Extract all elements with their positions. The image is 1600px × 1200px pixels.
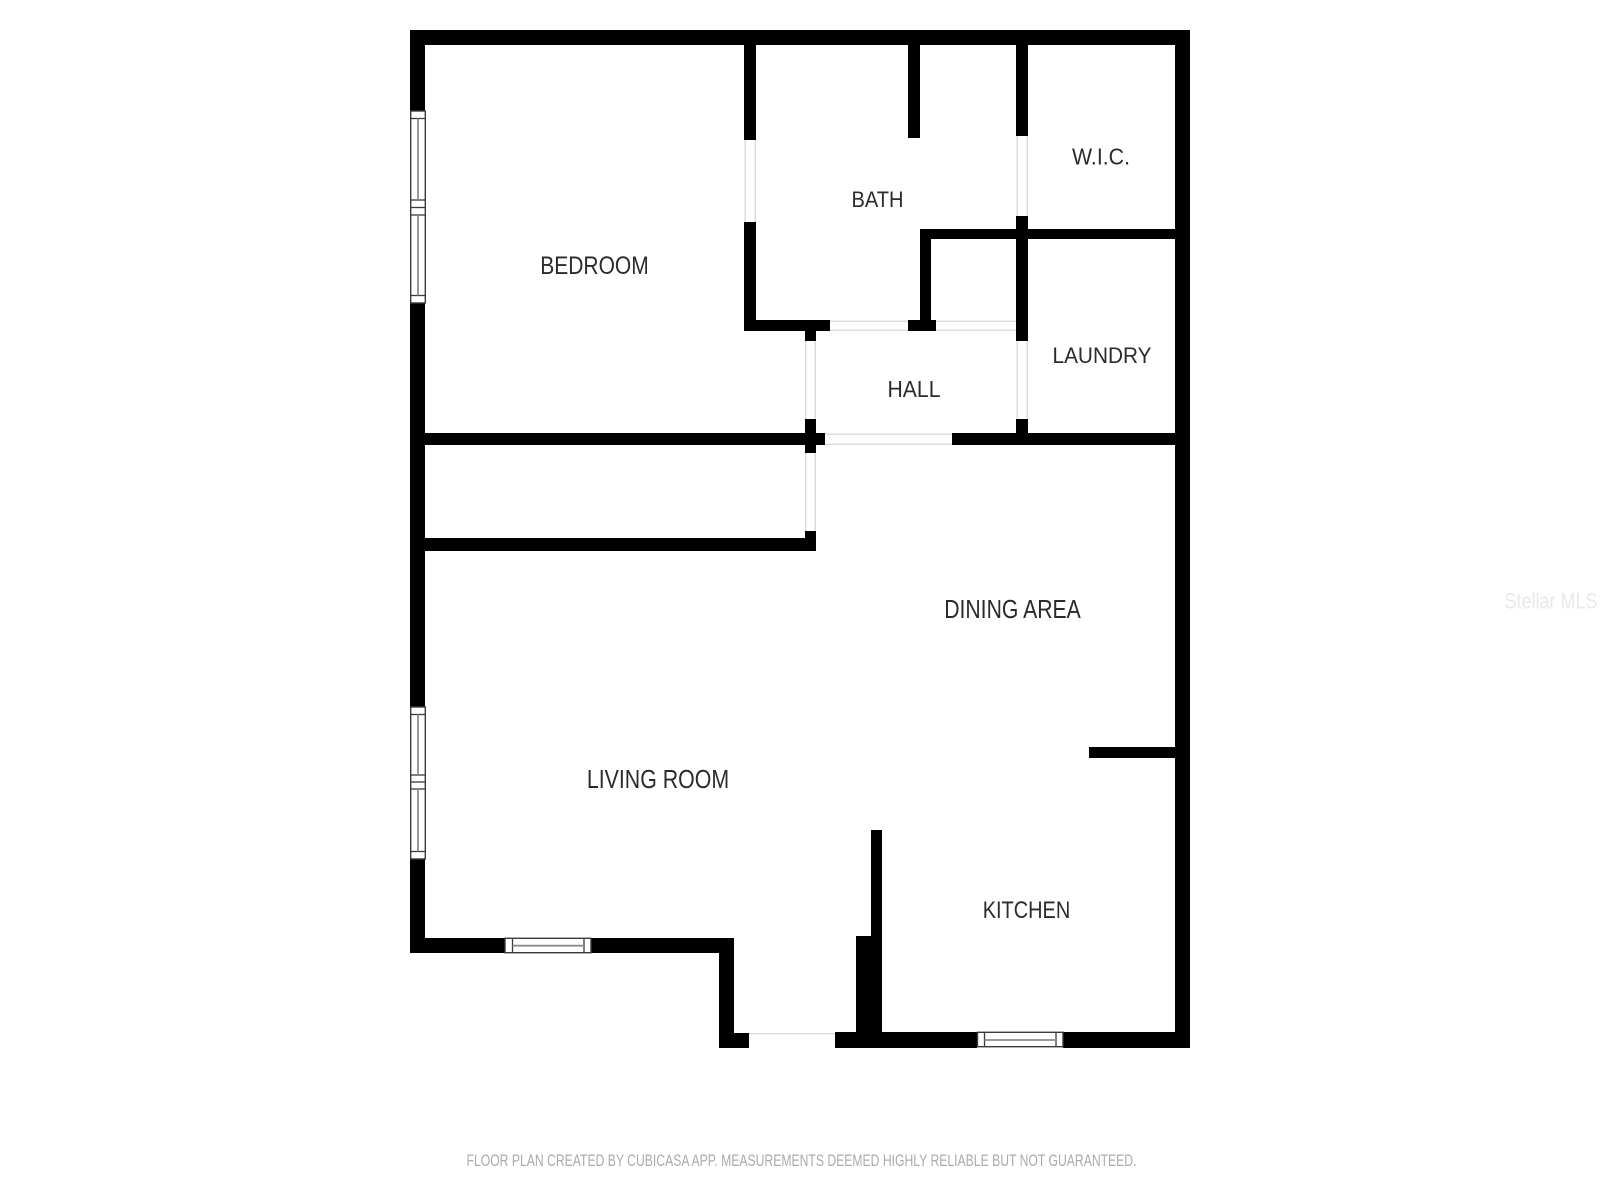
svg-text:W.I.C.: W.I.C. [1072,144,1130,170]
svg-text:KITCHEN: KITCHEN [983,897,1071,924]
svg-text:Stellar MLS: Stellar MLS [1505,589,1598,614]
svg-text:LAUNDRY: LAUNDRY [1053,343,1152,368]
svg-text:HALL: HALL [888,376,941,402]
svg-text:LIVING ROOM: LIVING ROOM [587,764,729,794]
svg-text:DINING AREA: DINING AREA [944,594,1081,624]
svg-text:BATH: BATH [852,187,904,212]
svg-text:FLOOR PLAN CREATED BY CUBICASA: FLOOR PLAN CREATED BY CUBICASA APP. MEAS… [467,1151,1137,1170]
svg-text:BEDROOM: BEDROOM [540,252,649,280]
